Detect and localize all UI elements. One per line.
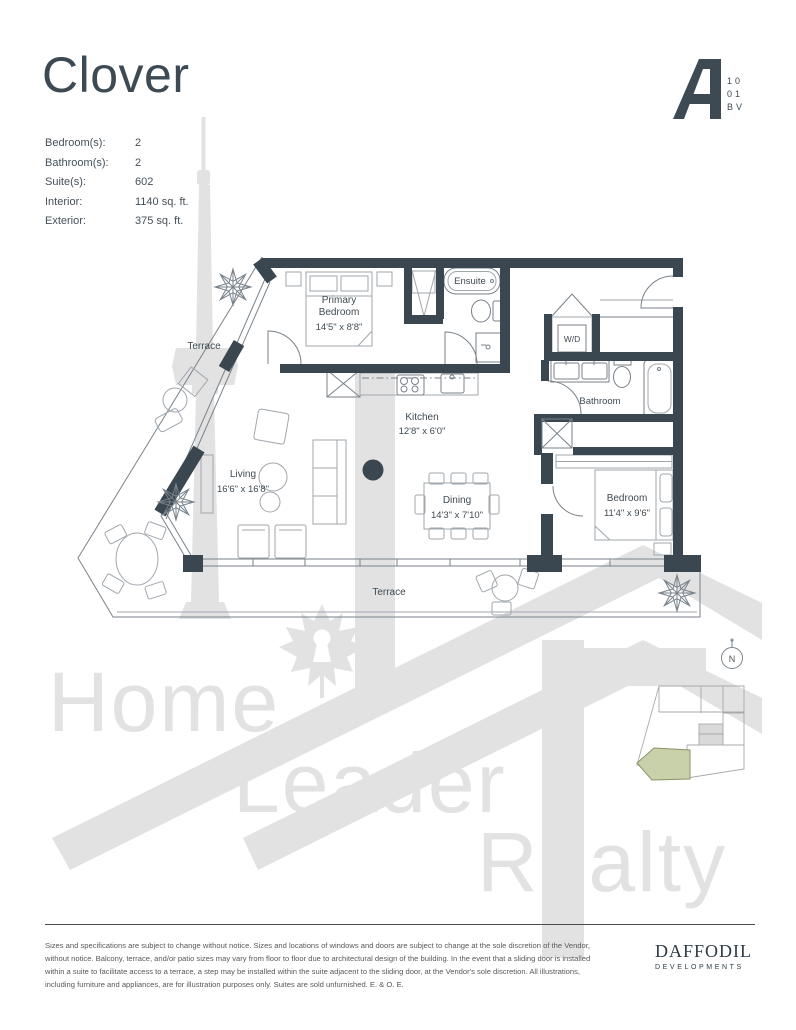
spec-row-exterior: Exterior: 375 sq. ft. [45, 215, 189, 235]
developer-name: DAFFODIL [655, 941, 752, 962]
ensuite-label: Ensuite [454, 276, 486, 287]
unit-code: 10 01 BV [727, 75, 745, 114]
primary-bedroom-dims: 14'5" x 8'8" [316, 322, 363, 333]
star-ornament-icon [652, 568, 703, 619]
dining-dims: 14'3" x 7'10" [431, 510, 483, 521]
living-label: Living [230, 469, 256, 480]
spec-label: Exterior: [45, 215, 135, 227]
terrace-upper-label: Terrace [187, 341, 221, 352]
bathroom-label: Bathroom [579, 396, 620, 407]
terrace-lower-label: Terrace [372, 587, 406, 598]
building-a-logo-icon [666, 55, 724, 126]
star-ornament-icon [151, 477, 202, 528]
bedroom-furniture [553, 455, 673, 555]
spec-value: 1140 sq. ft. [135, 196, 189, 208]
suite-specs: Bedroom(s): 2 Bathroom(s): 2 Suite(s): 6… [45, 137, 189, 235]
living-dims: 16'6" x 16'8" [217, 484, 269, 495]
unit-code-line: BV [727, 101, 745, 114]
bathroom-fixtures [548, 359, 675, 417]
disclaimer-text: Sizes and specifications are subject to … [45, 939, 685, 991]
floorplan-page: Home Leader Realty Clover Bedroom(s): 2 … [0, 0, 796, 1030]
spec-row-interior: Interior: 1140 sq. ft. [45, 196, 189, 216]
spec-value: 2 [135, 137, 141, 149]
kitchen-fixtures [327, 370, 478, 397]
keyplan-suite-highlight [637, 748, 690, 780]
primary-bedroom-label: Primary [322, 295, 356, 306]
keyplan-core [699, 724, 723, 745]
spec-row-bathrooms: Bathroom(s): 2 [45, 157, 189, 177]
page-title: Clover [42, 50, 189, 100]
unit-code-line: 10 [727, 75, 745, 88]
bedroom-label: Bedroom [607, 493, 648, 504]
bedroom-dims: 11'4" x 9'6" [604, 508, 650, 519]
entry-door [641, 276, 673, 308]
developer-subtitle: DEVELOPMENTS [655, 964, 752, 971]
building-keyplan [637, 686, 744, 780]
footer-divider [45, 924, 755, 925]
spec-value: 375 sq. ft. [135, 215, 183, 227]
spec-label: Bathroom(s): [45, 157, 135, 169]
compass-label: N [729, 654, 736, 664]
terrace-outline [78, 257, 700, 617]
dining-label: Dining [443, 495, 471, 506]
kitchen-dims: 12'8" x 6'0" [399, 426, 446, 437]
dining-furniture [415, 473, 499, 539]
spec-value: 2 [135, 157, 141, 169]
compass-icon: N [722, 639, 743, 669]
spec-label: Suite(s): [45, 176, 135, 188]
spec-value: 602 [135, 176, 153, 188]
laundry-label: W/D [564, 334, 581, 344]
utility-shaft [542, 419, 572, 448]
spec-row-bedrooms: Bedroom(s): 2 [45, 137, 189, 157]
unit-code-line: 01 [727, 88, 745, 101]
spec-label: Bedroom(s): [45, 137, 135, 149]
spec-row-suites: Suite(s): 602 [45, 176, 189, 196]
star-ornament-icon [208, 262, 259, 313]
spec-label: Interior: [45, 196, 135, 208]
developer-logo: DAFFODIL DEVELOPMENTS [655, 941, 752, 971]
kitchen-label: Kitchen [405, 412, 438, 423]
structural-column [363, 460, 384, 481]
laundry-closet [552, 294, 673, 357]
primary-bedroom-label: Bedroom [319, 307, 360, 318]
